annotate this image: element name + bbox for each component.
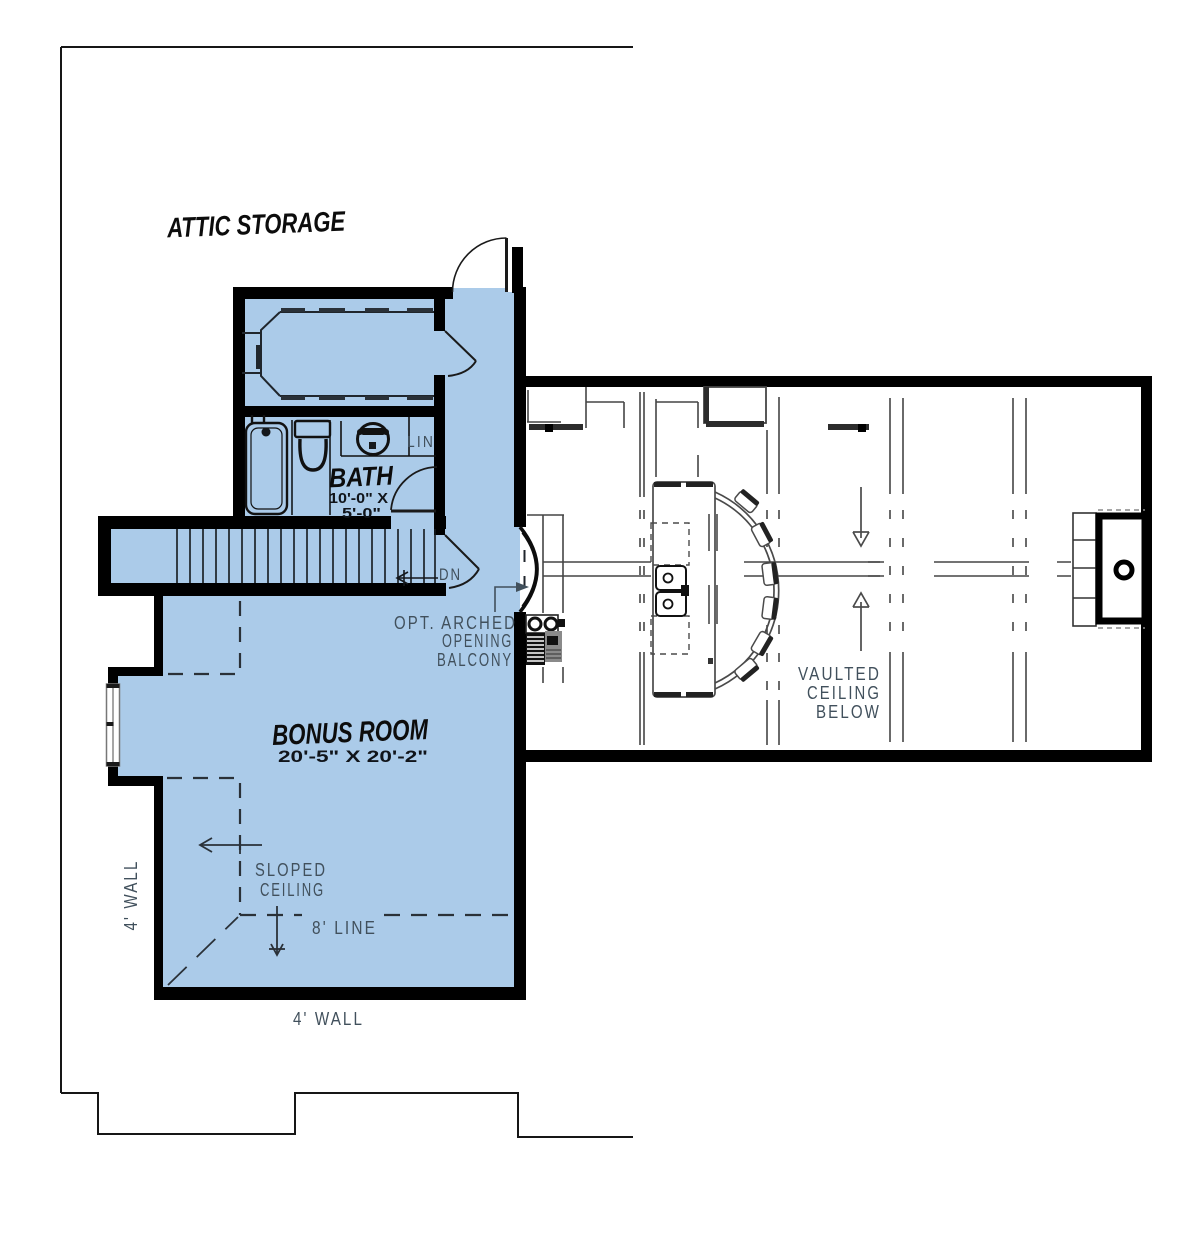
svg-text:CEILING: CEILING	[260, 880, 325, 900]
svg-text:8' LINE: 8' LINE	[312, 918, 377, 938]
svg-text:DN: DN	[439, 565, 462, 584]
svg-text:LIN: LIN	[407, 434, 435, 451]
svg-text:OPT. ARCHED: OPT. ARCHED	[394, 613, 517, 633]
svg-text:4' WALL: 4' WALL	[293, 1009, 364, 1029]
svg-text:BATH: BATH	[328, 461, 394, 494]
svg-text:BALCONY: BALCONY	[437, 650, 513, 670]
svg-text:VAULTED: VAULTED	[798, 664, 881, 684]
svg-text:SLOPED: SLOPED	[255, 860, 327, 880]
svg-text:BELOW: BELOW	[816, 702, 881, 722]
svg-text:4' WALL: 4' WALL	[121, 860, 141, 931]
svg-text:CEILING: CEILING	[807, 683, 881, 703]
svg-text:20'-5" X 20'-2": 20'-5" X 20'-2"	[278, 747, 428, 766]
svg-text:OPENING: OPENING	[442, 631, 513, 651]
svg-text:5'-0": 5'-0"	[342, 505, 381, 522]
